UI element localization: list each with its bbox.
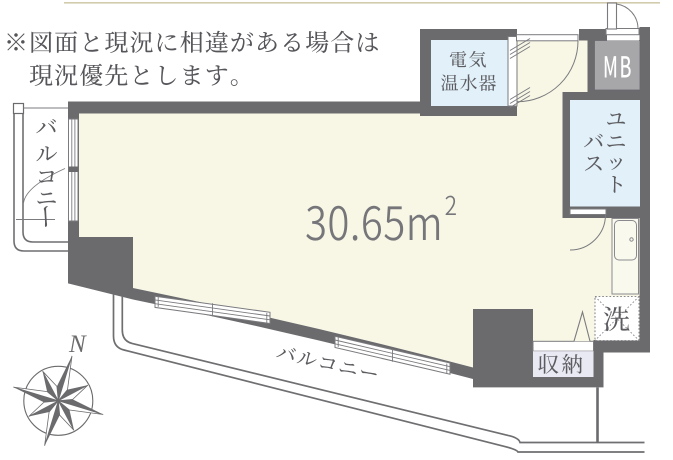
svg-text:N: N: [68, 331, 87, 358]
